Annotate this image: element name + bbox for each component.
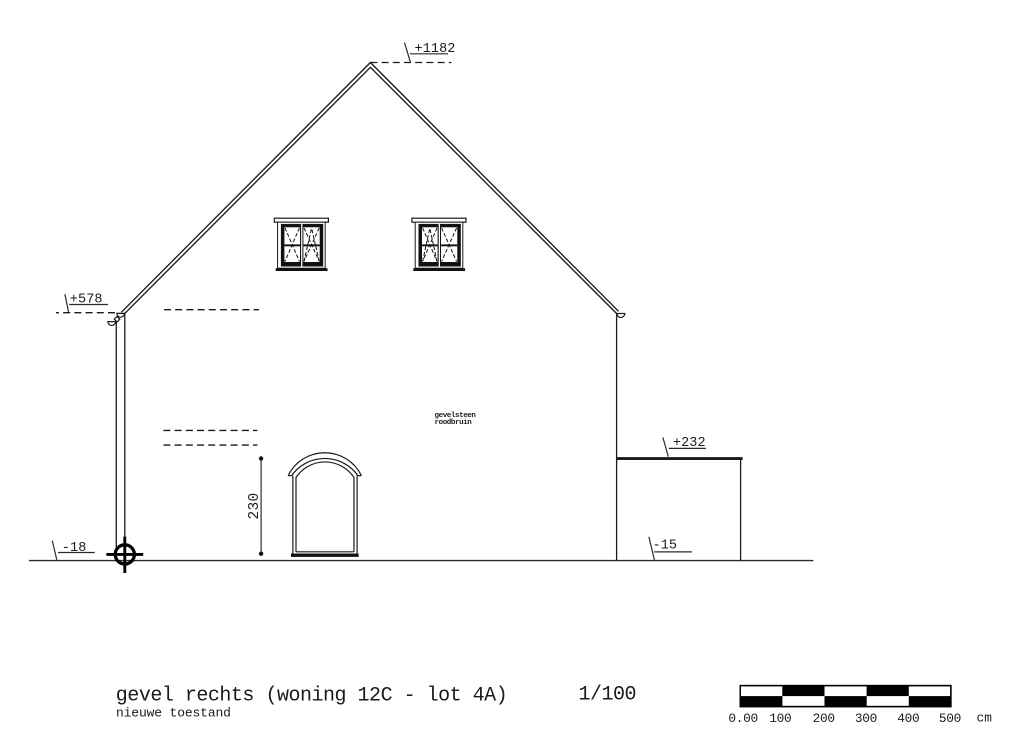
svg-text:+232: +232 [673, 436, 706, 451]
svg-text:1/100: 1/100 [579, 684, 637, 707]
svg-text:-15: -15 [653, 538, 678, 553]
svg-text:gevel rechts (woning 12C - lot: gevel rechts (woning 12C - lot 4A) [116, 685, 507, 708]
svg-text:400: 400 [897, 711, 919, 726]
svg-text:200: 200 [813, 711, 835, 726]
svg-text:nieuwe toestand: nieuwe toestand [116, 705, 231, 720]
svg-text:300: 300 [855, 711, 877, 726]
svg-text:-18: -18 [62, 541, 87, 556]
svg-text:+578: +578 [70, 293, 103, 308]
svg-text:+1182: +1182 [415, 42, 456, 57]
svg-text:500: 500 [939, 711, 961, 726]
svg-text:0.00: 0.00 [728, 711, 758, 726]
svg-text:230: 230 [247, 492, 263, 519]
svg-text:100: 100 [769, 711, 791, 726]
svg-text:roodbruin: roodbruin [435, 419, 473, 427]
svg-text:cm: cm [977, 711, 993, 726]
